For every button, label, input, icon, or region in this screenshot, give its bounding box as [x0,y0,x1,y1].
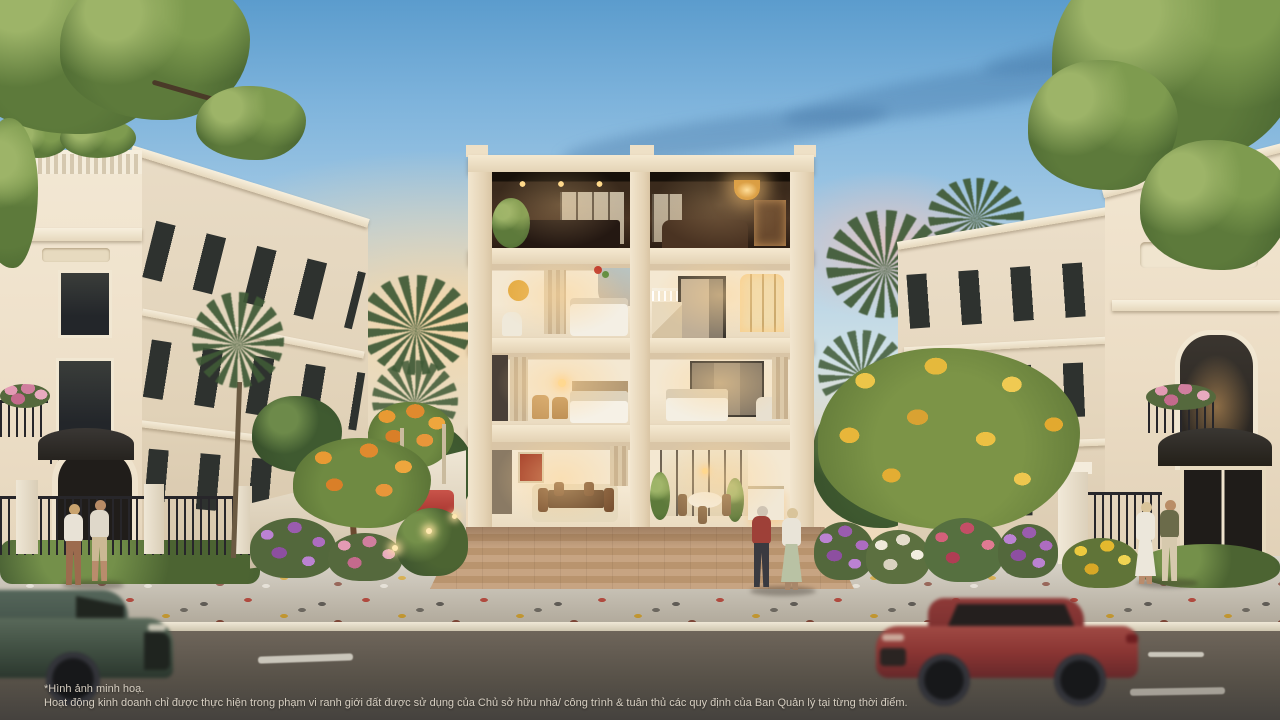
disclaimer-line1: *Hình ảnh minh hoạ. [44,682,908,696]
room-f2-bedroom [650,353,790,425]
balcony-flowers [1146,384,1216,410]
room-f4-salon-right [650,172,790,250]
fence-pillar [144,484,164,554]
yellow-flame-tree [818,348,1080,530]
path-light [426,528,432,534]
person-skirt [1135,538,1156,576]
person-torso [64,514,83,542]
pedestrian-man-red-jacket [750,506,774,588]
warm-glow [492,172,630,250]
person-skirt [781,544,802,582]
wheel [918,654,970,706]
pink-red-flowers [924,518,1004,582]
tree-canopy [1140,140,1280,270]
person-torso [752,516,771,544]
person-legs [66,541,81,585]
center-pier [630,172,650,532]
pedestrian-woman-white-dress [1134,502,1158,584]
red-suv [876,592,1140,712]
green-shrubs [396,508,468,576]
palm-tree [192,292,284,388]
relief-ornament [42,248,110,262]
headlight [148,624,166,631]
purple-flowers [814,522,874,580]
front-grille [144,632,170,670]
pink-flowers [328,533,402,581]
near-tower-band [1112,300,1280,311]
yellow-flowers [1062,538,1140,588]
path-light [392,545,398,551]
person-torso [1136,512,1155,540]
tower-window [58,270,112,338]
warm-glow [492,353,630,425]
path-light [452,514,457,519]
room-f4-lounge-left [492,172,630,250]
room-f3-stair-hall [650,264,790,338]
pedestrian-woman-skirt [780,508,804,590]
pedestrian-man-olive [1158,500,1182,582]
pergola-post [442,424,446,484]
front-grille [880,648,906,666]
taillight [1126,634,1138,643]
person-torso [782,518,801,546]
person-feet [1139,576,1152,584]
warm-glow [650,353,790,425]
person-torso [90,510,109,538]
disclaimer-line2: Hoạt động kinh doanh chỉ được thực hiện … [44,696,908,710]
room-f3-kids-bedroom [492,264,630,338]
entrance-awning [1158,428,1272,466]
pedestrian-man [88,500,112,582]
person-legs [754,543,769,587]
disclaimer-text: *Hình ảnh minh hoạ. Hoạt động kinh doanh… [44,682,908,710]
pedestrian-woman [62,504,86,586]
warm-glow [492,442,630,530]
fence-pillar [16,480,38,554]
parapet [468,155,814,173]
person-torso [1160,510,1179,538]
tree-canopy [196,86,306,160]
entrance-awning [38,428,134,460]
room-f2-master-bedroom [492,353,630,425]
room-f1-dining [492,442,630,530]
white-flowers [866,530,930,584]
warm-glow [492,264,630,338]
dusk-villa-render-scene: *Hình ảnh minh hoạ. Hoạt động kinh doanh… [0,0,1280,720]
purple-flowers [998,524,1058,578]
purple-flowers [250,518,336,578]
headlight [882,634,904,641]
balcony-flowers [0,384,50,408]
person-legs [92,537,107,581]
warm-glow [650,264,790,338]
lane-marking [1148,652,1204,657]
person-feet [785,582,798,590]
warm-glow [650,172,790,250]
person-legs [1162,537,1177,581]
wheel [1054,654,1106,706]
outer-pier-left [468,172,492,532]
outer-pier-right [790,172,814,532]
